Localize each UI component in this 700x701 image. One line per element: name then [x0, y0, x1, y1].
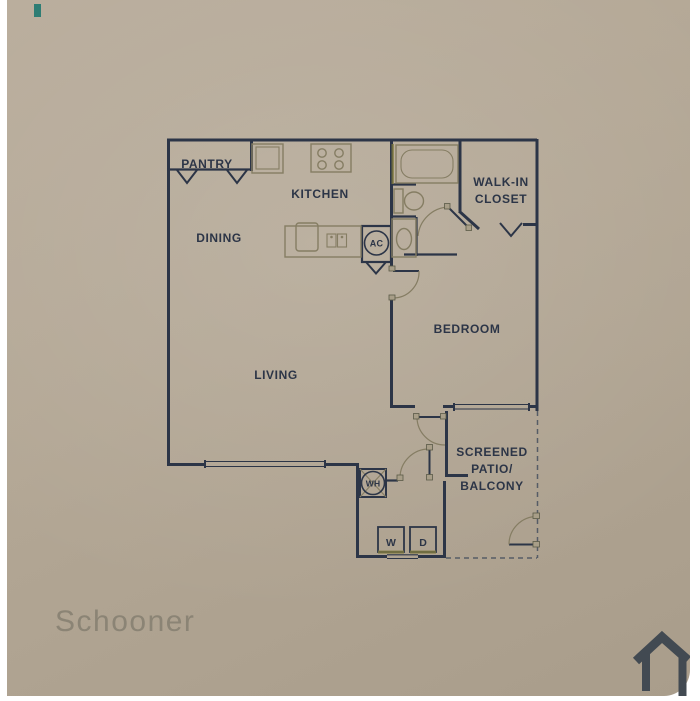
kitchen-peninsula [285, 223, 361, 257]
window-utility [387, 555, 418, 559]
tub-wall-accent [392, 144, 395, 184]
pantry-door-chevron-left [177, 170, 197, 183]
wh-label: WH [366, 479, 381, 489]
door-bathroom [418, 204, 472, 237]
plan-title: Schooner [55, 605, 195, 638]
door-patio [509, 513, 540, 547]
kitchen-sink [327, 234, 347, 247]
room-label-patio-line3: BALCONY [460, 479, 524, 493]
room-label-bedroom: BEDROOM [434, 322, 501, 336]
floorplan-drawing: AC WH W D PANTRY KITCHEN DINING LIVING B… [7, 0, 690, 696]
door-vestibule-top [414, 414, 447, 446]
stove [311, 144, 351, 172]
teal-mark [34, 4, 41, 17]
washer-label: W [386, 537, 396, 549]
floorplan-photo: AC WH W D PANTRY KITCHEN DINING LIVING B… [7, 0, 690, 696]
door-utility [397, 445, 433, 481]
room-label-dining: DINING [196, 231, 242, 245]
water-heater: WH [360, 469, 386, 497]
ac-label: AC [370, 239, 384, 249]
room-label-closet-line2: CLOSET [475, 192, 527, 206]
window-living [205, 460, 325, 468]
toilet [394, 189, 424, 213]
kitchen-counter-top [252, 144, 283, 173]
ac-unit: AC [365, 231, 389, 255]
room-label-closet-line1: WALK-IN [473, 175, 529, 189]
door-bedroom [389, 266, 419, 300]
washer: W [378, 527, 404, 554]
house-icon [636, 637, 688, 696]
room-label-pantry: PANTRY [181, 157, 233, 171]
dryer-label: D [419, 537, 427, 549]
room-label-kitchen: KITCHEN [291, 187, 349, 201]
ac-door-chevron [366, 262, 386, 274]
bathroom-sink [392, 219, 416, 257]
bathtub [396, 145, 458, 183]
refrigerator [296, 223, 318, 251]
room-label-patio-line2: PATIO/ [471, 462, 513, 476]
dryer: D [410, 527, 436, 554]
fixtures: AC WH W D [252, 144, 458, 554]
room-label-patio-line1: SCREENED [456, 445, 527, 459]
pantry-door-chevron-right [227, 170, 247, 183]
room-label-living: LIVING [254, 368, 298, 382]
closet-door-chevron [500, 223, 522, 236]
window-bedroom [454, 403, 529, 411]
